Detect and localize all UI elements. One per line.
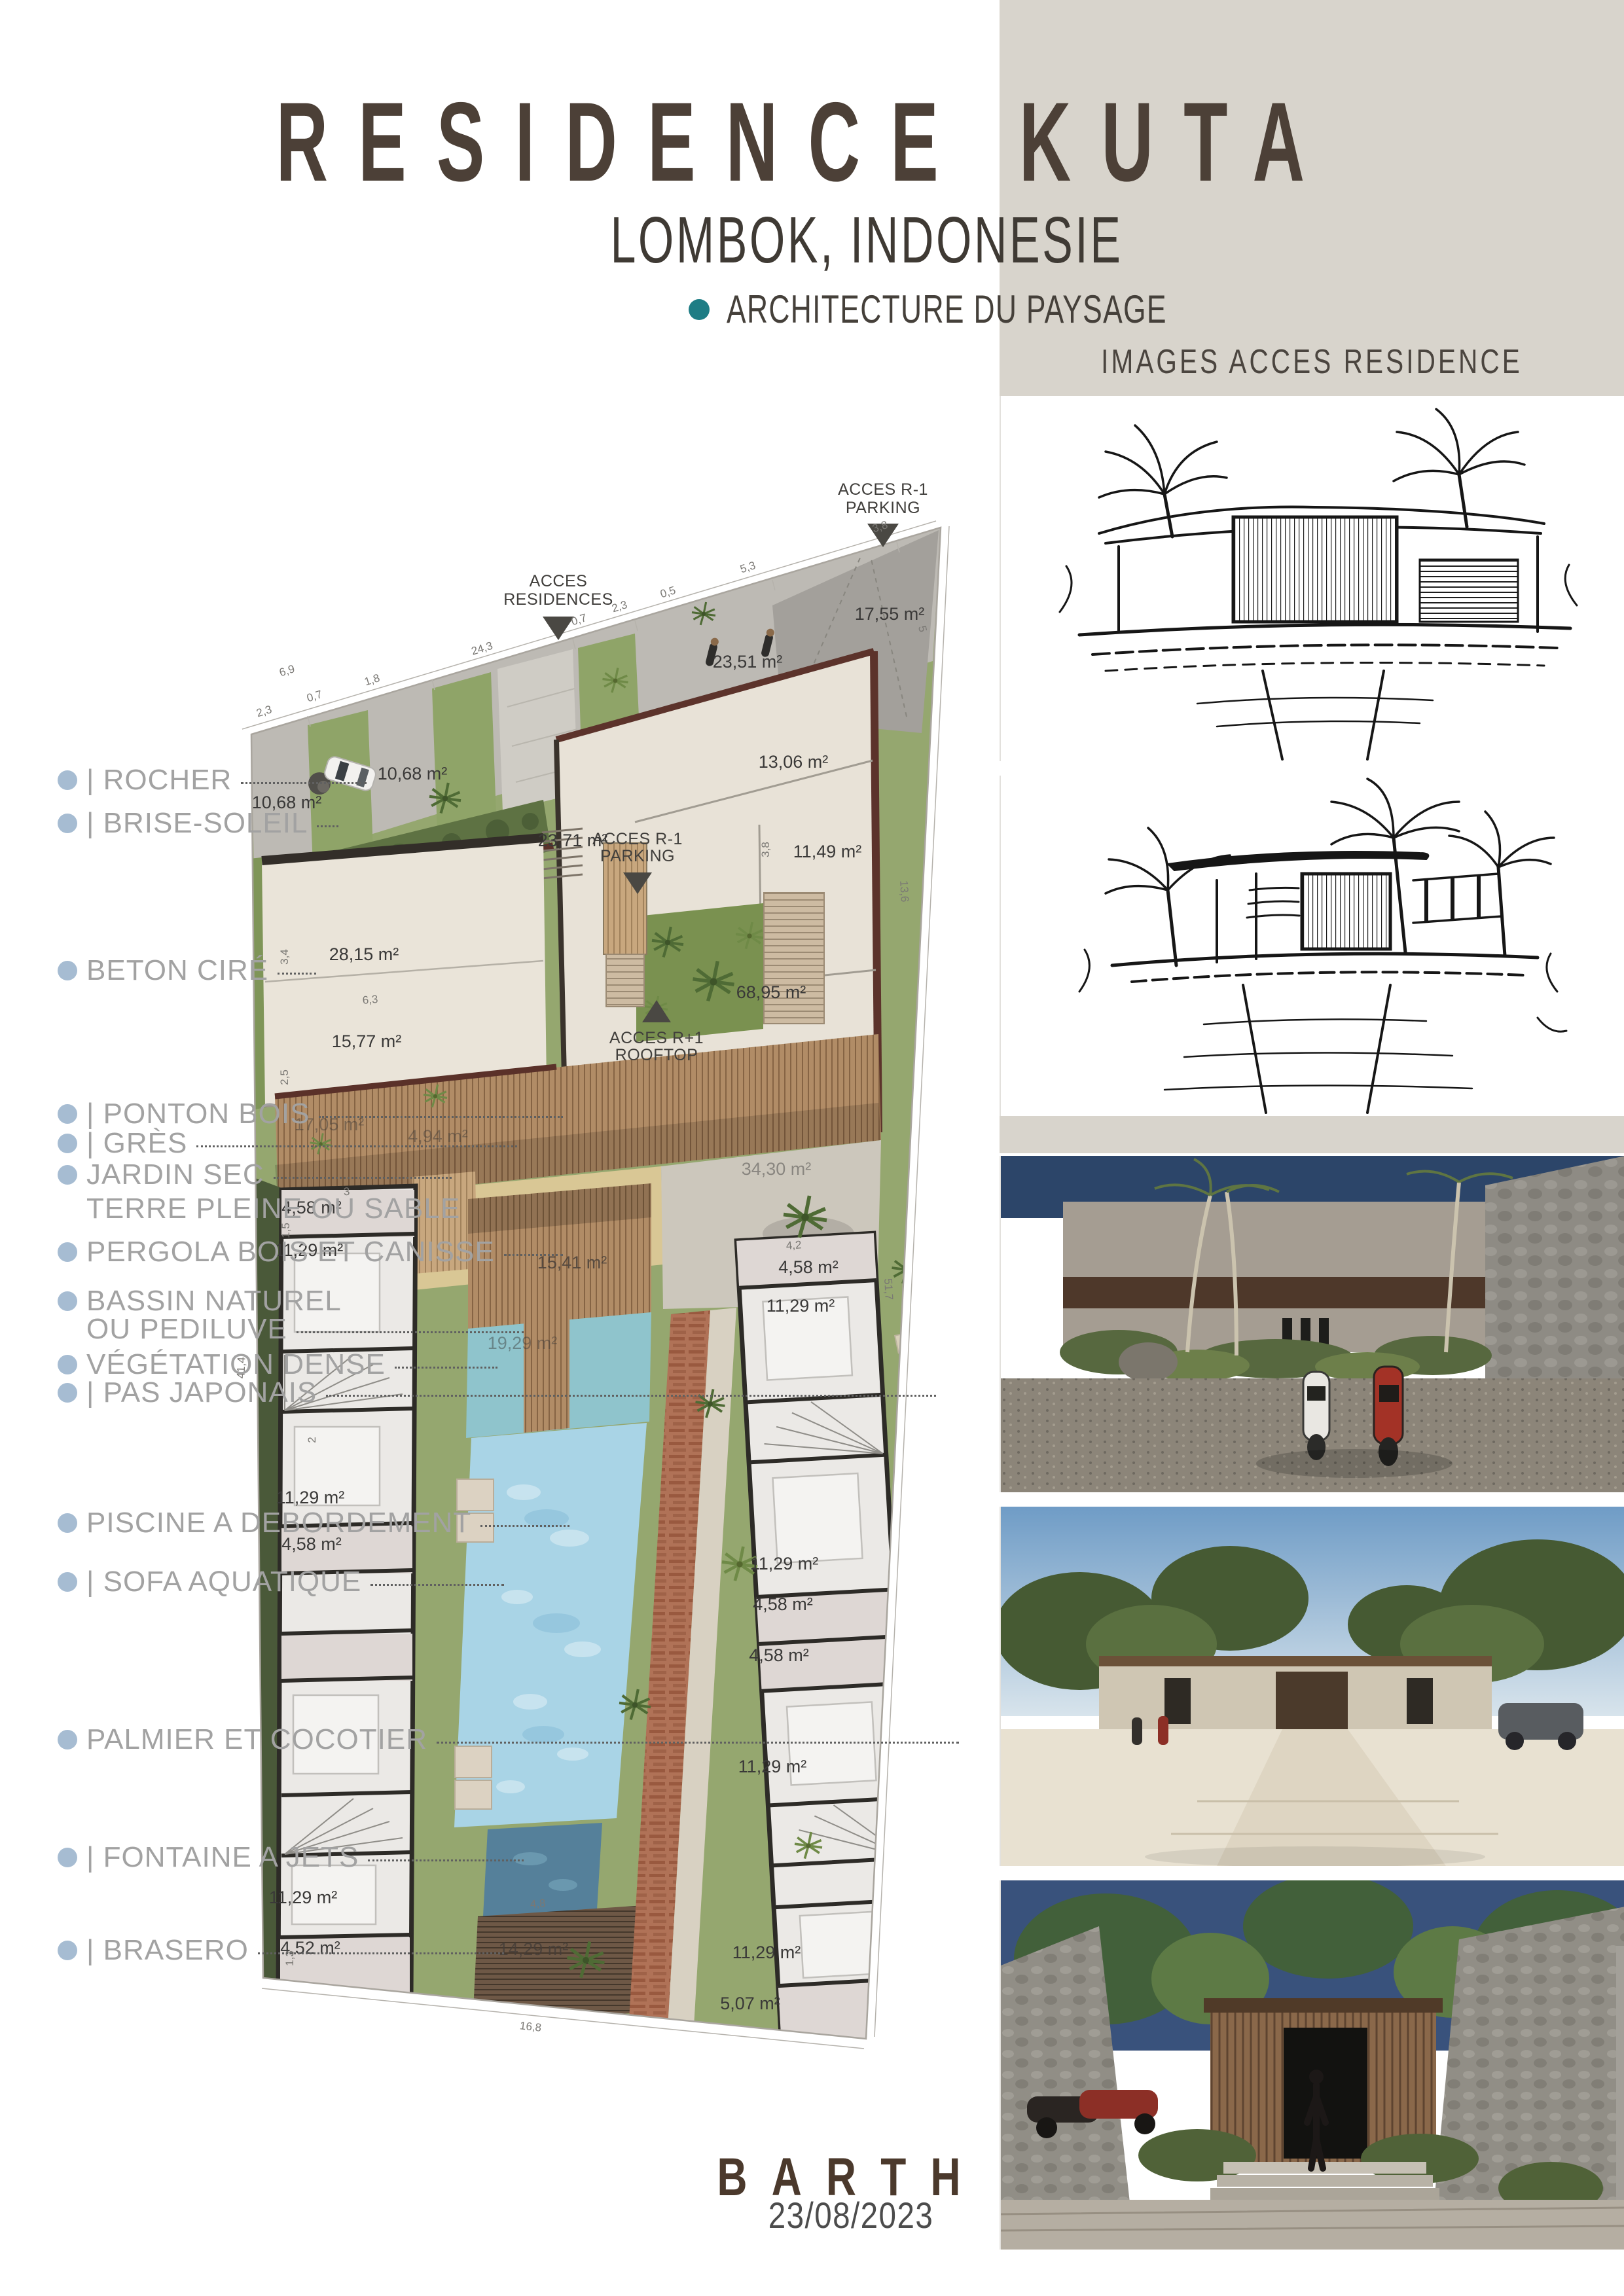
legend-label: JARDIN SEC [86, 1158, 264, 1191]
svg-text:ROOFTOP: ROOFTOP [615, 1046, 698, 1064]
svg-text:11,29 m²: 11,29 m² [732, 1943, 801, 1962]
legend-item-sofa-aquatique: | SOFA AQUATIQUE [58, 1565, 504, 1599]
svg-text:PARKING: PARKING [600, 847, 675, 865]
legend-label: OU PEDILUVE [86, 1313, 287, 1346]
svg-text:10,68 m²: 10,68 m² [378, 764, 448, 783]
svg-text:2,5: 2,5 [278, 1069, 291, 1085]
leader-line [319, 1116, 563, 1118]
render-driveway-villas [1000, 1507, 1624, 1866]
svg-text:5,07 m²: 5,07 m² [720, 1994, 780, 2013]
legend-label: PERGOLA BOIS ET CANISSE [86, 1236, 495, 1268]
legend-label: | FONTAINE A JETS [86, 1841, 359, 1874]
page-subtitle: LOMBOK, INDONESIE [408, 203, 1325, 278]
legend-label: | BRISE-SOLEIL [86, 807, 308, 840]
page-title: RESIDENCE KUTA [276, 77, 1257, 207]
svg-text:RESIDENCES: RESIDENCES [503, 590, 613, 609]
svg-text:ACCES R-1: ACCES R-1 [838, 480, 928, 499]
legend-bullet-icon [58, 1134, 77, 1153]
svg-text:ACCES R+1: ACCES R+1 [609, 1029, 704, 1047]
legend-item-gres: | GRÈS [58, 1126, 517, 1160]
piscine-a-debordement [454, 1423, 647, 1827]
legend-label: PALMIER ET COCOTIER [86, 1723, 427, 1756]
legend-item-fontaine: | FONTAINE A JETS [58, 1840, 524, 1874]
svg-text:6,9: 6,9 [278, 662, 296, 679]
leader-line [395, 1367, 497, 1369]
legend-bullet-icon [58, 1165, 77, 1185]
svg-text:11,29 m²: 11,29 m² [276, 1488, 345, 1507]
legend-item-rocher: | ROCHER [58, 763, 367, 797]
svg-text:4,2: 4,2 [785, 1238, 802, 1252]
ink-sketch-gate-front [1000, 396, 1624, 761]
svg-text:4,58 m²: 4,58 m² [753, 1594, 813, 1614]
legend-bullet-icon [58, 1355, 77, 1374]
legend-bullet-icon [58, 961, 77, 980]
leader-line [326, 1395, 936, 1397]
photo-3 [1001, 1880, 1624, 2250]
svg-text:34,30 m²: 34,30 m² [742, 1159, 812, 1179]
svg-text:23,51 m²: 23,51 m² [713, 652, 783, 672]
legend-item-pergola: PERGOLA BOIS ET CANISSE [58, 1235, 563, 1269]
svg-text:68,95 m²: 68,95 m² [736, 982, 806, 1002]
legend-label: | BRASERO [86, 1934, 249, 1967]
teal-bullet-icon [689, 299, 710, 320]
svg-text:5,3: 5,3 [738, 559, 757, 575]
svg-text:13,6: 13,6 [897, 880, 911, 903]
svg-text:0,5: 0,5 [659, 584, 677, 600]
pas-japonais-pavers [893, 1310, 969, 1378]
legend-bullet-icon [58, 1104, 77, 1124]
leader-line [241, 782, 367, 784]
triangle-down-icon [543, 617, 574, 640]
legend-item-piscine: PISCINE A DEBORDEMENT [58, 1506, 569, 1540]
legend-label: | PONTON BOIS [86, 1098, 310, 1130]
leader-line [258, 1952, 504, 1954]
svg-text:6,3: 6,3 [362, 993, 378, 1007]
svg-text:11,49 m²: 11,49 m² [793, 842, 862, 861]
legend-item-pas-japonais: | PAS JAPONAIS [58, 1376, 936, 1410]
leader-line [480, 1525, 569, 1527]
svg-text:4,58 m²: 4,58 m² [778, 1257, 839, 1277]
legend-label: | GRÈS [86, 1127, 187, 1160]
legend-item-bassin-line2: OU PEDILUVE [86, 1312, 524, 1346]
legend-label: BETON CIRÉ [86, 954, 268, 987]
svg-text:2,3: 2,3 [255, 703, 273, 719]
sketch-1-drawing [1001, 396, 1624, 761]
legend-item-brasero: | BRASERO [58, 1933, 504, 1967]
svg-text:11,29 m²: 11,29 m² [767, 1296, 835, 1316]
svg-text:ACCES: ACCES [530, 572, 588, 590]
svg-text:11,29 m²: 11,29 m² [750, 1554, 819, 1573]
leader-line [317, 825, 338, 827]
svg-text:4,8: 4,8 [530, 1897, 546, 1910]
svg-text:PARKING: PARKING [846, 499, 920, 517]
legend-item-beton-cire: BETON CIRÉ [58, 954, 316, 988]
photo-1 [1001, 1156, 1624, 1492]
leader-line [274, 1177, 452, 1179]
svg-text:51,7: 51,7 [882, 1278, 895, 1300]
svg-text:11,29 m²: 11,29 m² [269, 1888, 338, 1907]
beige-separator-strip [1000, 1116, 1624, 1153]
legend-bullet-icon [58, 1291, 77, 1311]
svg-text:0,7: 0,7 [305, 688, 323, 704]
legend-item-jardin-sec: JARDIN SEC [58, 1158, 452, 1192]
svg-text:28,15 m²: 28,15 m² [329, 944, 399, 964]
svg-text:0,7: 0,7 [569, 611, 588, 628]
photo-2 [1001, 1507, 1624, 1866]
svg-text:14,29 m²: 14,29 m² [499, 1939, 569, 1959]
tagline-text: ARCHITECTURE DU PAYSAGE [727, 287, 1167, 332]
legend-label: | PAS JAPONAIS [86, 1376, 317, 1409]
images-section-heading: IMAGES ACCES RESIDENCE [1068, 342, 1555, 382]
leader-line [297, 1331, 524, 1333]
leader-line [370, 1584, 504, 1586]
legend-bullet-icon [58, 1242, 77, 1262]
svg-text:2: 2 [306, 1437, 318, 1443]
svg-text:4,58 m²: 4,58 m² [749, 1645, 809, 1665]
svg-text:16,8: 16,8 [519, 2019, 542, 2034]
leader-line [504, 1254, 563, 1256]
svg-text:15,77 m²: 15,77 m² [332, 1031, 402, 1051]
svg-text:1,8: 1,8 [363, 672, 381, 688]
render-stone-wall-scooters [1000, 1156, 1624, 1492]
svg-text:3,8: 3,8 [759, 842, 772, 857]
legend-bullet-icon [58, 770, 77, 790]
legend-label: | ROCHER [86, 764, 232, 797]
leader-line [196, 1145, 517, 1147]
legend-bullet-icon [58, 1941, 77, 1960]
legend-item-palmier: PALMIER ET COCOTIER [58, 1723, 959, 1757]
render-entrance-with-person [1000, 1880, 1624, 2250]
date-label: 23/08/2023 [684, 2194, 1018, 2236]
legend-bullet-icon [58, 814, 77, 833]
legend-bullet-icon [58, 1730, 77, 1749]
svg-text:23,71 m²: 23,71 m² [538, 831, 608, 850]
legend-bullet-icon [58, 1383, 77, 1403]
legend-bullet-icon [58, 1513, 77, 1533]
svg-text:13,06 m²: 13,06 m² [759, 752, 829, 772]
sketch-2-drawing [1001, 776, 1624, 1116]
leader-line [437, 1742, 959, 1744]
legend-bullet-icon [58, 1848, 77, 1867]
poster-page: IMAGES ACCES RESIDENCE [0, 0, 1624, 2296]
leader-line [278, 973, 316, 975]
svg-text:11,29 m²: 11,29 m² [738, 1757, 807, 1776]
ink-sketch-gate-perspective [1000, 776, 1624, 1116]
legend-bullet-icon [58, 1572, 77, 1592]
legend-label: PISCINE A DEBORDEMENT [86, 1507, 471, 1539]
tagline-row: ARCHITECTURE DU PAYSAGE [689, 287, 1322, 332]
legend-label-line2: TERRE PLEINE OU SABLE [86, 1193, 460, 1225]
leader-line [368, 1859, 524, 1861]
legend-item-brise-soleil: | BRISE-SOLEIL [58, 806, 338, 840]
legend-label: | SOFA AQUATIQUE [86, 1566, 361, 1598]
svg-text:17,55 m²: 17,55 m² [855, 604, 925, 624]
